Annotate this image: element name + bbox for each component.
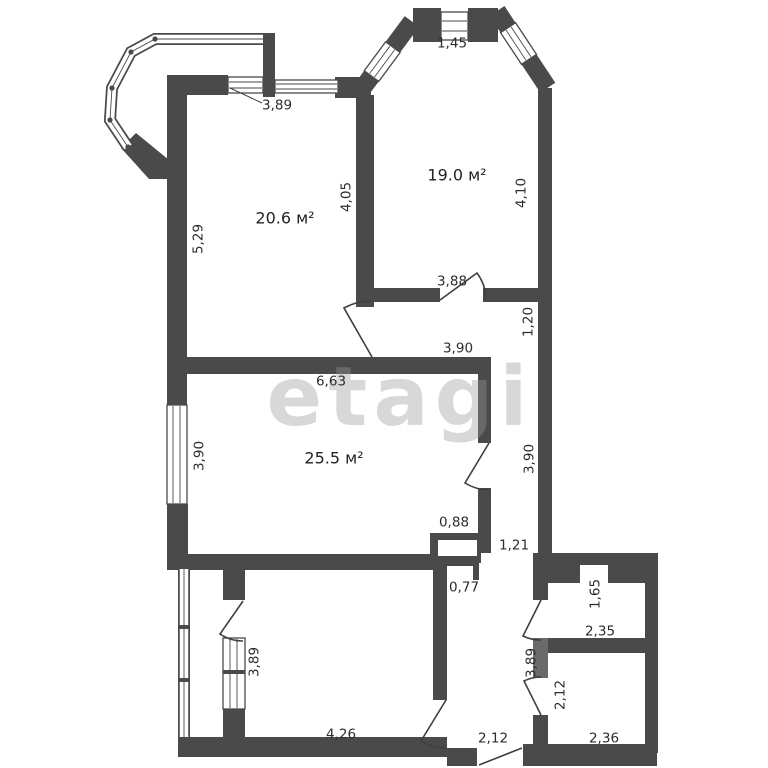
bay-chamfer-right — [489, 6, 555, 93]
dim-room-br-width: 2,36 — [589, 731, 619, 747]
bay-chamfer-left — [349, 16, 419, 102]
window-room20-left — [228, 77, 263, 93]
dim-room19-right: 4,10 — [514, 178, 530, 208]
loggia-glazing — [178, 569, 190, 737]
dim-room-br-height: 2,12 — [553, 680, 569, 710]
door-room20 — [344, 301, 372, 357]
dim-strip-width: 1,21 — [499, 538, 529, 554]
duct-shaft — [438, 540, 477, 556]
dim-room-bl-width: 4,26 — [326, 727, 356, 743]
dim-hall-length: 3,89 — [524, 648, 540, 678]
dim-hall-width: 2,12 — [478, 731, 508, 747]
dim-bath-height: 1,65 — [588, 579, 604, 609]
dim-room25-width: 6,63 — [316, 374, 346, 390]
dim-strip-length: 3,90 — [522, 444, 538, 474]
floor-plan: etagi 20.6 м² 19.0 м² 25.5 м² 1,45 3,89 … — [0, 0, 768, 768]
dim-bay-top: 1,45 — [437, 36, 467, 52]
watermark: etagi — [267, 350, 534, 445]
room-label-20: 20.6 м² — [255, 209, 314, 228]
dim-room20-right: 4,05 — [339, 182, 355, 212]
dim-room19-width: 3,88 — [437, 274, 467, 290]
dim-corridor-width: 3,90 — [443, 341, 473, 357]
dim-corridor-height: 1,20 — [521, 307, 537, 337]
dim-niche-width: 0,77 — [449, 580, 479, 596]
room-label-25: 25.5 м² — [304, 449, 363, 468]
door-bathroom — [523, 600, 541, 640]
room-label-19: 19.0 м² — [427, 166, 486, 185]
floor-plan-page: etagi 20.6 м² 19.0 м² 25.5 м² 1,45 3,89 … — [0, 0, 768, 768]
door-room25 — [465, 443, 489, 490]
dim-room20-width: 3,89 — [262, 98, 292, 114]
window-room20-right — [275, 80, 338, 93]
wall-niche — [447, 566, 473, 580]
door-room-bottom-right — [524, 677, 541, 715]
dim-room-bl-height: 3,89 — [247, 647, 263, 677]
window-room25 — [167, 405, 187, 504]
dim-room25-height: 3,90 — [192, 441, 208, 471]
dim-shaft-width: 0,88 — [439, 515, 469, 531]
window-room-bottom-left — [223, 638, 245, 709]
dim-room20-height: 5,29 — [191, 224, 207, 254]
dim-bath-width: 2,35 — [585, 624, 615, 640]
entrance-door — [479, 748, 522, 765]
door-loggia — [220, 601, 243, 641]
